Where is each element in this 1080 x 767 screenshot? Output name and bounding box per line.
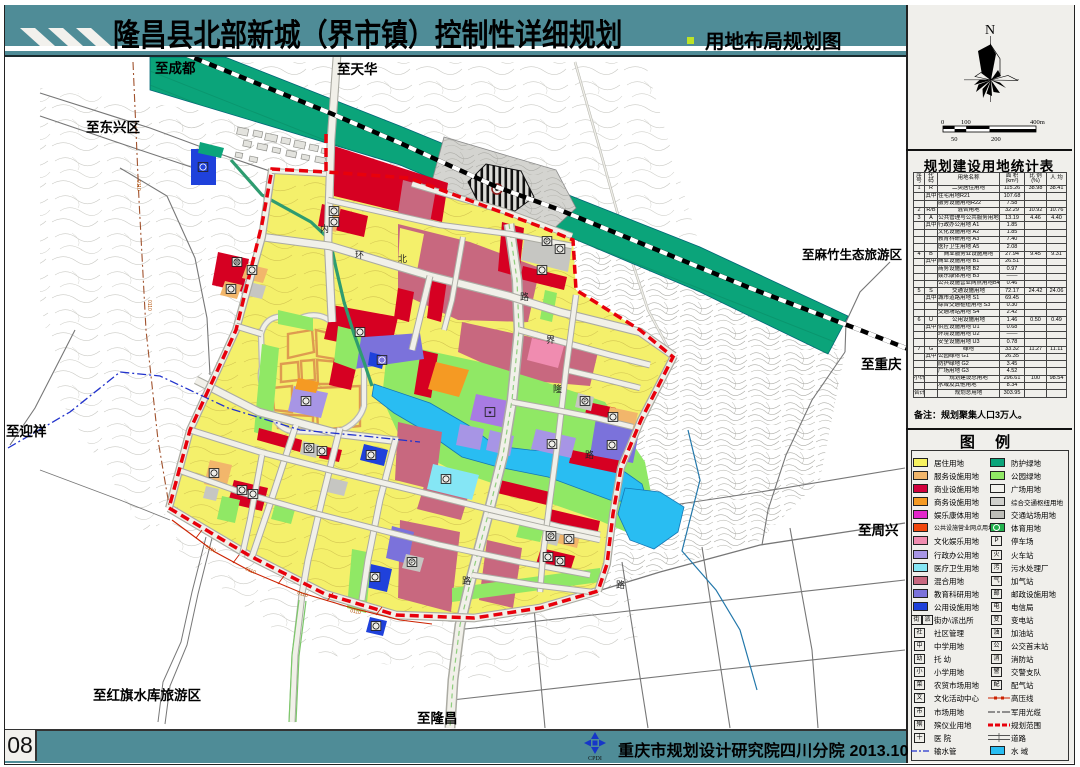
svg-text:200: 200 xyxy=(991,136,1001,142)
svg-text:环: 环 xyxy=(355,250,364,260)
svg-text:路: 路 xyxy=(520,291,529,302)
svg-text:内: 内 xyxy=(320,223,329,234)
svg-text:0110: 0110 xyxy=(135,180,141,191)
svg-text:至天华: 至天华 xyxy=(337,61,378,77)
svg-text:★: ★ xyxy=(488,410,493,416)
svg-text:路: 路 xyxy=(616,579,625,590)
svg-text:至成都: 至成都 xyxy=(155,60,196,76)
svg-text:商: 商 xyxy=(234,259,239,266)
svg-text:50: 50 xyxy=(951,136,958,142)
svg-text:路: 路 xyxy=(462,575,471,586)
svg-text:至隆昌: 至隆昌 xyxy=(417,710,458,726)
svg-text:隆: 隆 xyxy=(553,383,562,394)
svg-text:至周兴: 至周兴 xyxy=(858,522,899,538)
svg-text:路: 路 xyxy=(585,449,594,460)
svg-text:至红旗水库旅游区: 至红旗水库旅游区 xyxy=(93,687,201,703)
svg-text:100: 100 xyxy=(961,119,971,126)
svg-text:400m: 400m xyxy=(1030,119,1045,126)
svg-text:N: N xyxy=(985,23,995,38)
svg-text:北: 北 xyxy=(398,254,407,264)
svg-text:0: 0 xyxy=(941,119,944,126)
svg-text:至麻竹生态旅游区: 至麻竹生态旅游区 xyxy=(802,247,903,262)
svg-text:界: 界 xyxy=(546,335,555,345)
svg-text:至迎祥: 至迎祥 xyxy=(6,423,47,439)
svg-text:CPDI: CPDI xyxy=(588,756,602,761)
svg-text:0110: 0110 xyxy=(146,300,152,311)
svg-text:至东兴区: 至东兴区 xyxy=(86,119,140,135)
svg-text:至重庆: 至重庆 xyxy=(861,356,902,372)
